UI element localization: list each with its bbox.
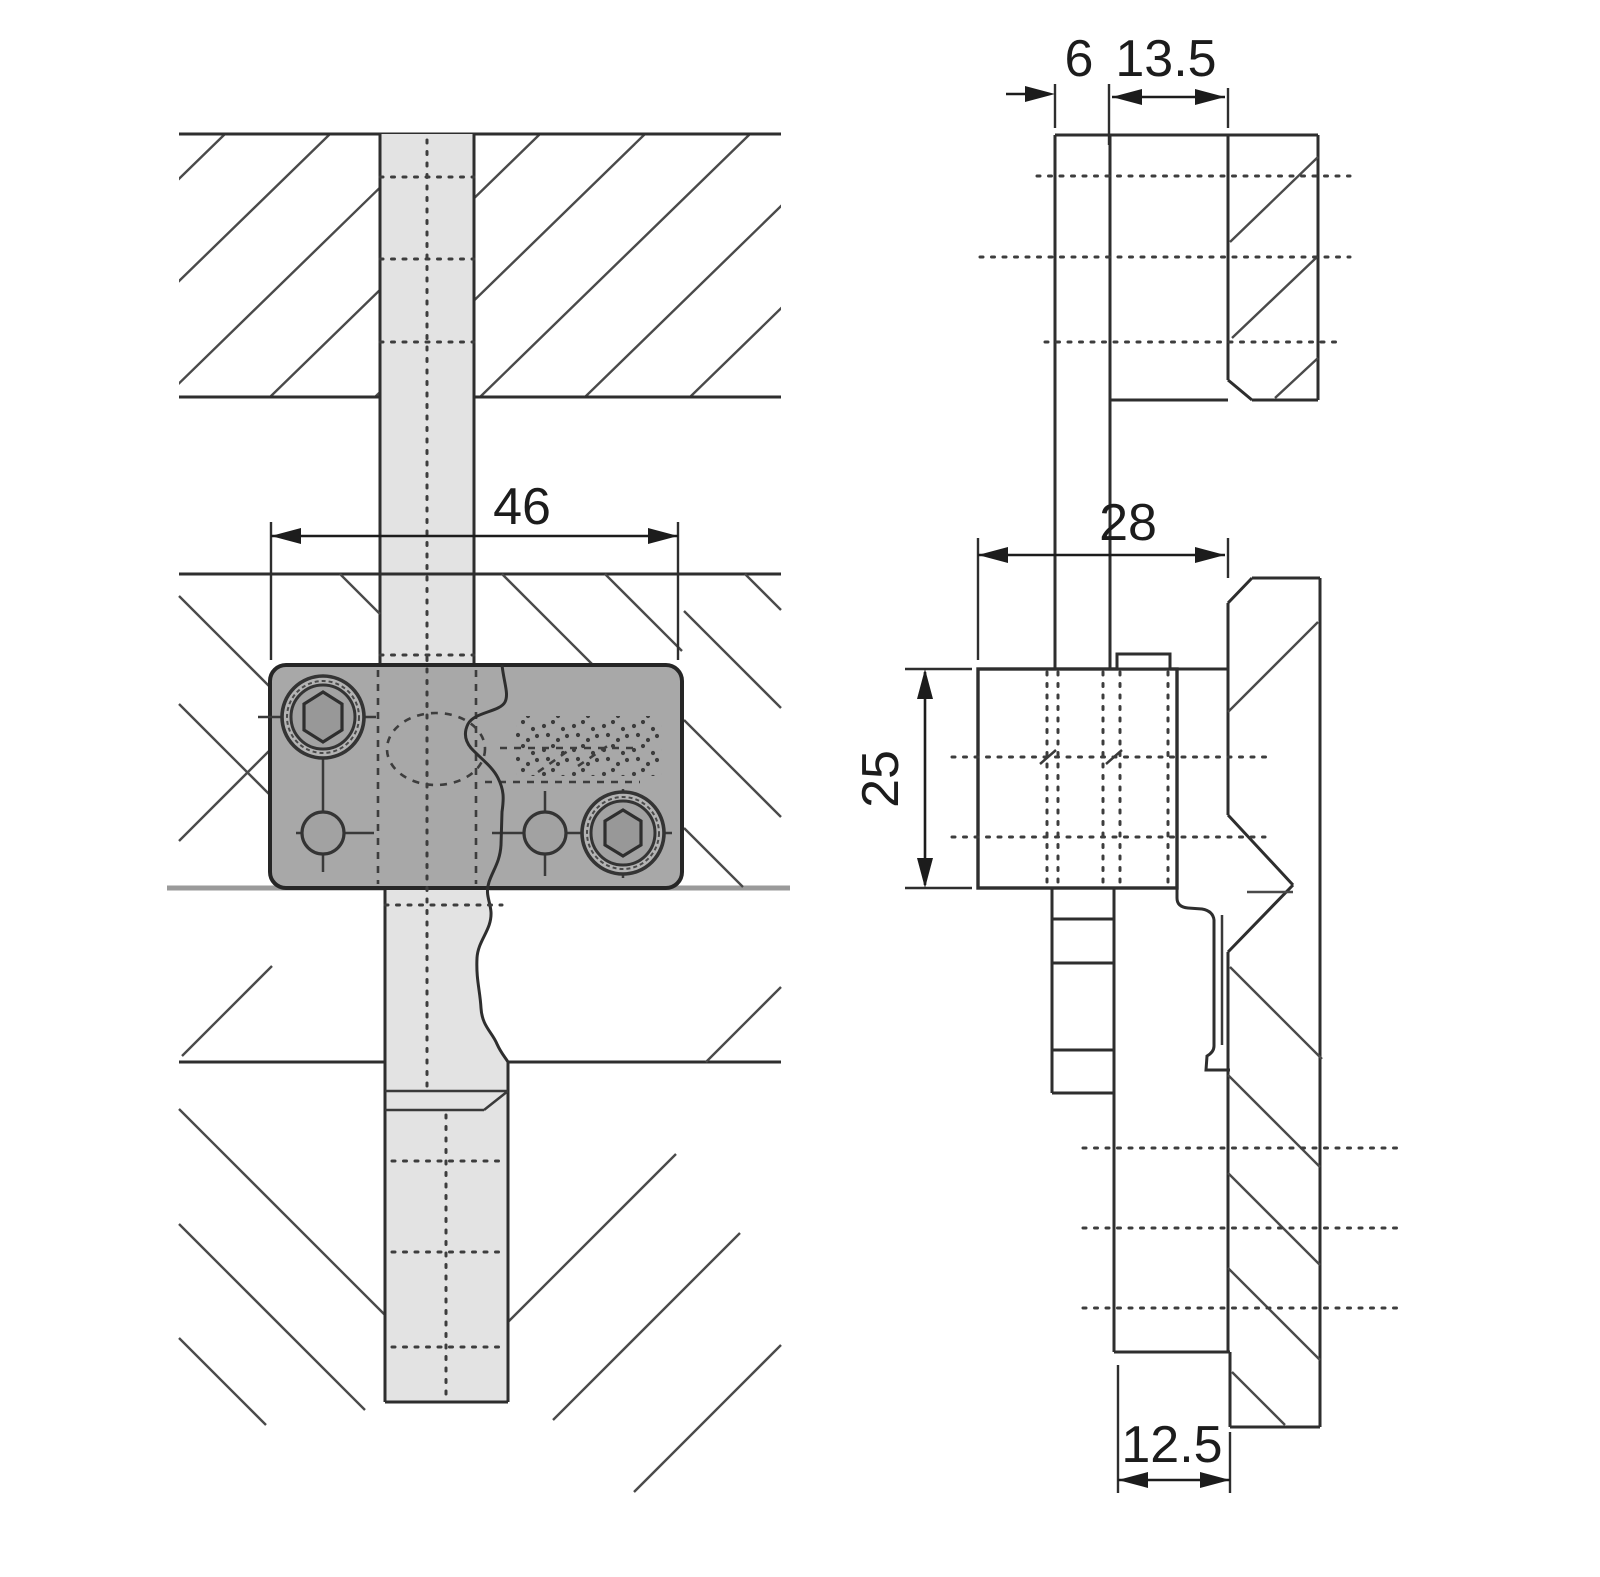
wall-panel-bottom xyxy=(1228,578,1322,1427)
knurl-texture xyxy=(516,716,662,776)
front-section-view: 46 xyxy=(0,134,1065,1492)
latch-tab xyxy=(1117,654,1170,669)
dim-label-25: 25 xyxy=(852,750,910,808)
dim-label-12-5: 12.5 xyxy=(1121,1416,1222,1474)
technical-drawing-canvas: 46 6 xyxy=(0,0,1600,1577)
panel-strip xyxy=(1055,135,1110,669)
dim-label-6: 6 xyxy=(1065,30,1094,88)
dowel-ladder xyxy=(1052,888,1230,1352)
top-panel-section xyxy=(0,134,1065,397)
dim-label-28: 28 xyxy=(1099,494,1157,552)
drawing-svg: 46 6 xyxy=(0,0,1600,1577)
dimension-25: 25 xyxy=(852,669,972,888)
mounting-plate xyxy=(258,665,682,888)
hook-bracket xyxy=(1177,888,1230,1070)
dimension-6: 6 xyxy=(1006,30,1109,145)
dim-label-46: 46 xyxy=(493,478,551,536)
hex-socket-icon xyxy=(605,810,641,856)
vertical-dowel-bar-upper xyxy=(380,134,474,665)
side-axis-lines-lower xyxy=(1083,1148,1397,1308)
side-axis-lines-upper xyxy=(980,176,1350,342)
dimension-12-5: 12.5 xyxy=(1118,1365,1230,1493)
fitting-body xyxy=(952,654,1272,888)
dim-label-13-5: 13.5 xyxy=(1115,30,1216,88)
side-section-view: 6 13.5 28 xyxy=(852,30,1397,1493)
dimension-13-5: 13.5 xyxy=(1112,30,1228,128)
hex-socket-screw-bottom-right xyxy=(582,789,664,878)
dimension-28: 28 xyxy=(978,494,1228,660)
hex-socket-icon xyxy=(304,692,342,742)
